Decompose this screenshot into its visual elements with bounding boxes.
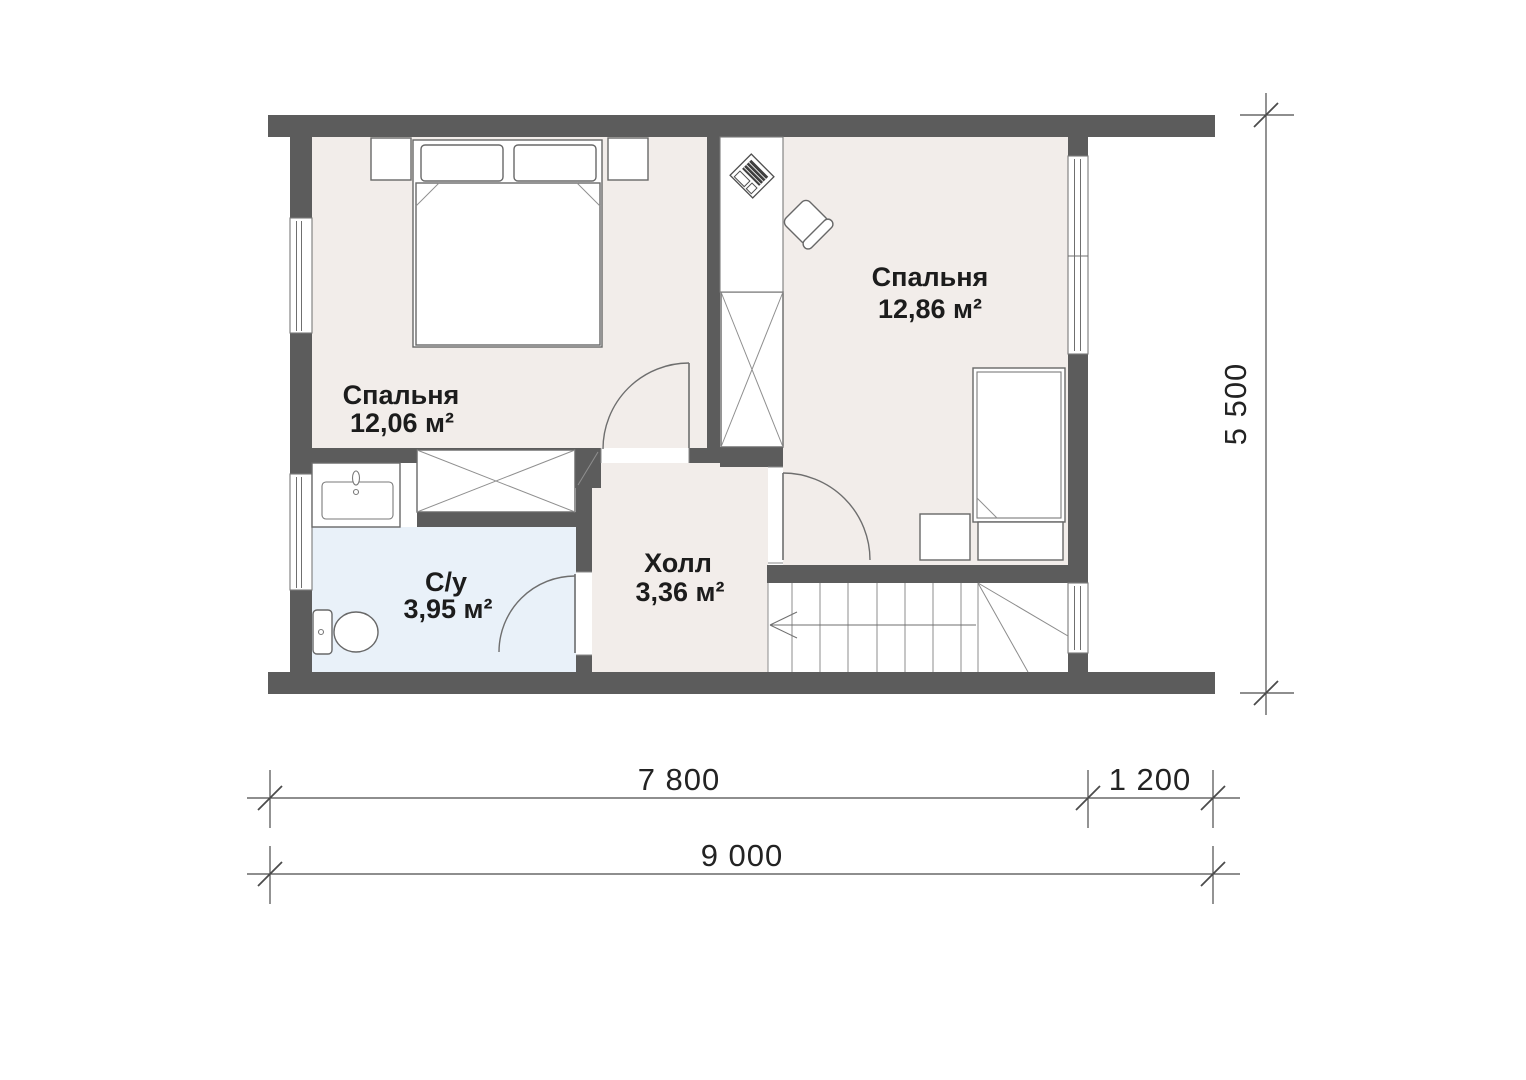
bedroom-1-label: Спальня: [343, 380, 460, 410]
window-icon: [290, 474, 312, 590]
dimension-width-main: 7 800: [638, 762, 721, 797]
floor-plan-page: Спальня 12,06 м² Спальня 12,86 м² С/у 3,…: [0, 0, 1526, 1080]
hall-label: Холл: [644, 548, 712, 578]
bedroom-2-area: 12,86 м²: [878, 294, 982, 324]
wall-bathroom-right-pier: [576, 655, 592, 672]
dimension-row-1: 7 800 1 200: [247, 762, 1240, 828]
sink-icon: [312, 463, 400, 527]
nightstand-icon: [371, 138, 411, 180]
wardrobe-x-icon: [721, 292, 783, 447]
exterior-wall-right: [1068, 137, 1088, 156]
double-bed-icon: [413, 140, 602, 347]
wardrobe-x-icon: [417, 450, 575, 512]
floor-plan-drawing: Спальня 12,06 м² Спальня 12,86 м² С/у 3,…: [0, 0, 1526, 1080]
exterior-wall-top: [268, 115, 1215, 137]
exterior-wall-bottom: [268, 672, 1215, 694]
single-bed-icon: [973, 368, 1065, 560]
pillow-icon: [421, 145, 503, 181]
exterior-wall-left: [290, 590, 312, 672]
window-icon: [1068, 156, 1088, 354]
dimension-height-total: 5 500: [1218, 363, 1253, 446]
bathroom-area: 3,95 м²: [403, 594, 492, 624]
dimension-row-2: 9 000: [247, 838, 1240, 904]
bedroom-1-area: 12,06 м²: [350, 408, 454, 438]
window-icon: [290, 218, 312, 333]
dimension-width-ext: 1 200: [1109, 762, 1192, 797]
dimension-width-total: 9 000: [701, 838, 784, 873]
wall-bathroom-right: [576, 488, 592, 572]
window-icon: [1068, 583, 1088, 653]
wall-bedroom1-right: [707, 137, 720, 450]
nightstand-icon: [608, 138, 648, 180]
hall-area: 3,36 м²: [635, 577, 724, 607]
nightstand-icon: [920, 514, 970, 560]
stairs-arrow-icon: [770, 612, 976, 638]
stairs-icon: [768, 583, 1068, 672]
toilet-icon: [313, 610, 378, 654]
wall-bathroom-top: [417, 512, 592, 527]
wall-bedroom2-stairs: [767, 565, 1088, 583]
bathroom-label: С/у: [425, 567, 467, 597]
bedroom-2-label: Спальня: [872, 262, 989, 292]
dimension-column-right: 5 500: [1218, 93, 1294, 715]
exterior-wall-left: [290, 333, 312, 474]
wall-niche-bottom: [720, 447, 783, 467]
wall-pier: [689, 448, 720, 463]
duvet: [978, 522, 1063, 560]
pillow-icon: [514, 145, 596, 181]
exterior-wall-right: [1068, 354, 1088, 565]
exterior-wall-right: [1068, 653, 1088, 672]
exterior-wall-left: [290, 137, 312, 218]
